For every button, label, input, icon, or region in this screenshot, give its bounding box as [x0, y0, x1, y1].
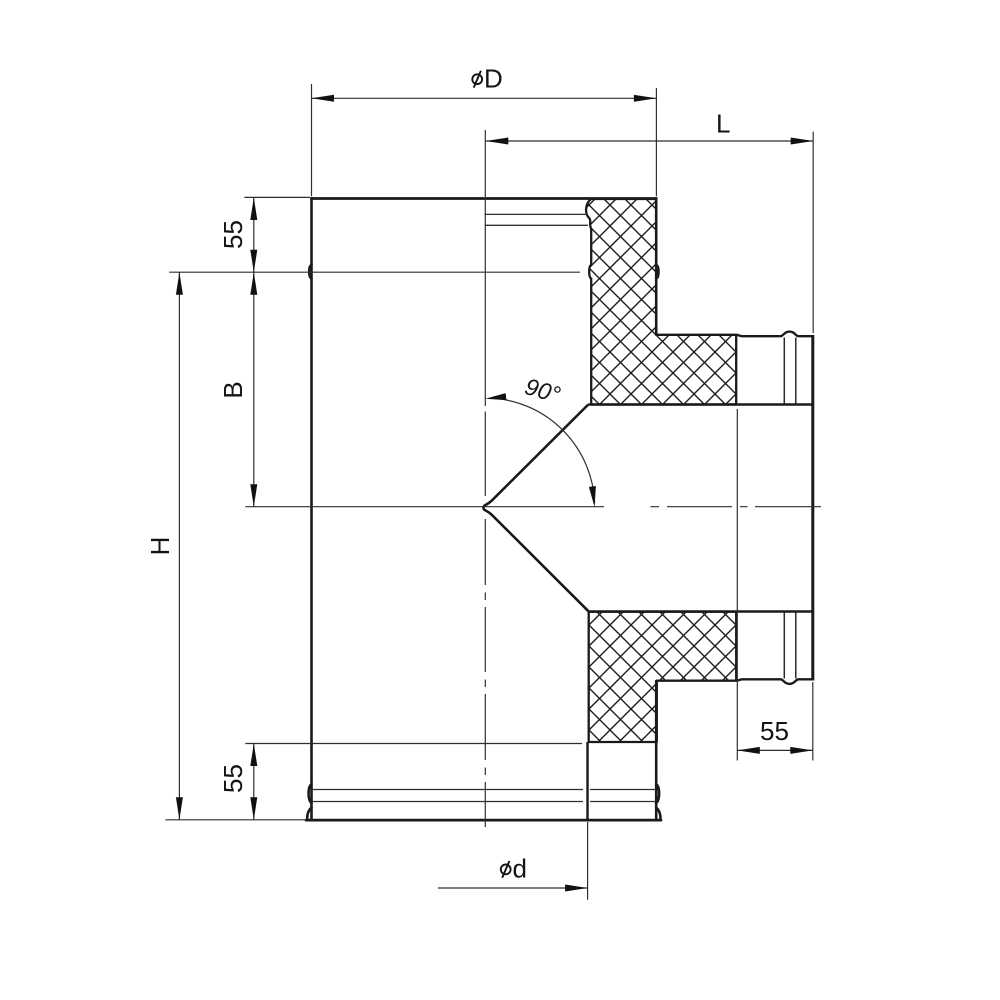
- svg-text:55: 55: [760, 716, 789, 746]
- svg-text:d: d: [513, 854, 527, 884]
- svg-text:L: L: [716, 109, 730, 139]
- svg-text:55: 55: [218, 764, 248, 793]
- svg-text:B: B: [218, 381, 248, 398]
- svg-text:D: D: [484, 64, 503, 94]
- svg-text:H: H: [145, 537, 175, 556]
- svg-text:55: 55: [218, 220, 248, 249]
